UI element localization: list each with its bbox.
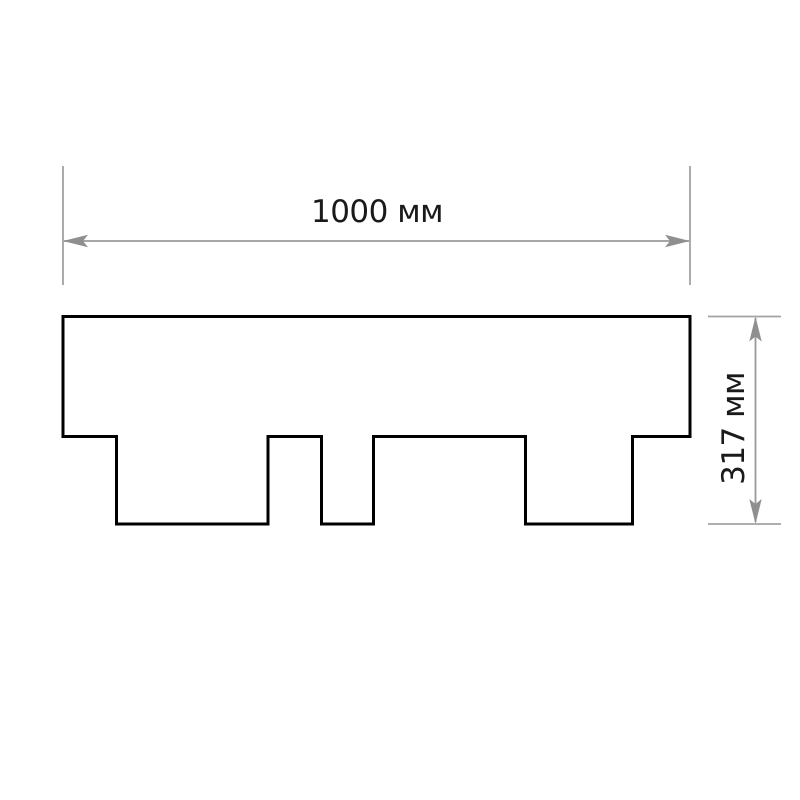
width-dimension: 1000 мм [63,166,690,285]
width-dimension-label: 1000 мм [311,194,443,230]
height-dimension: 317 мм [708,317,781,525]
shingle-dimension-drawing: 1000 мм 317 мм [0,0,800,800]
shingle-outline [63,317,690,525]
drawing-canvas: 1000 мм 317 мм [0,0,800,800]
height-dimension-label: 317 мм [716,372,752,485]
